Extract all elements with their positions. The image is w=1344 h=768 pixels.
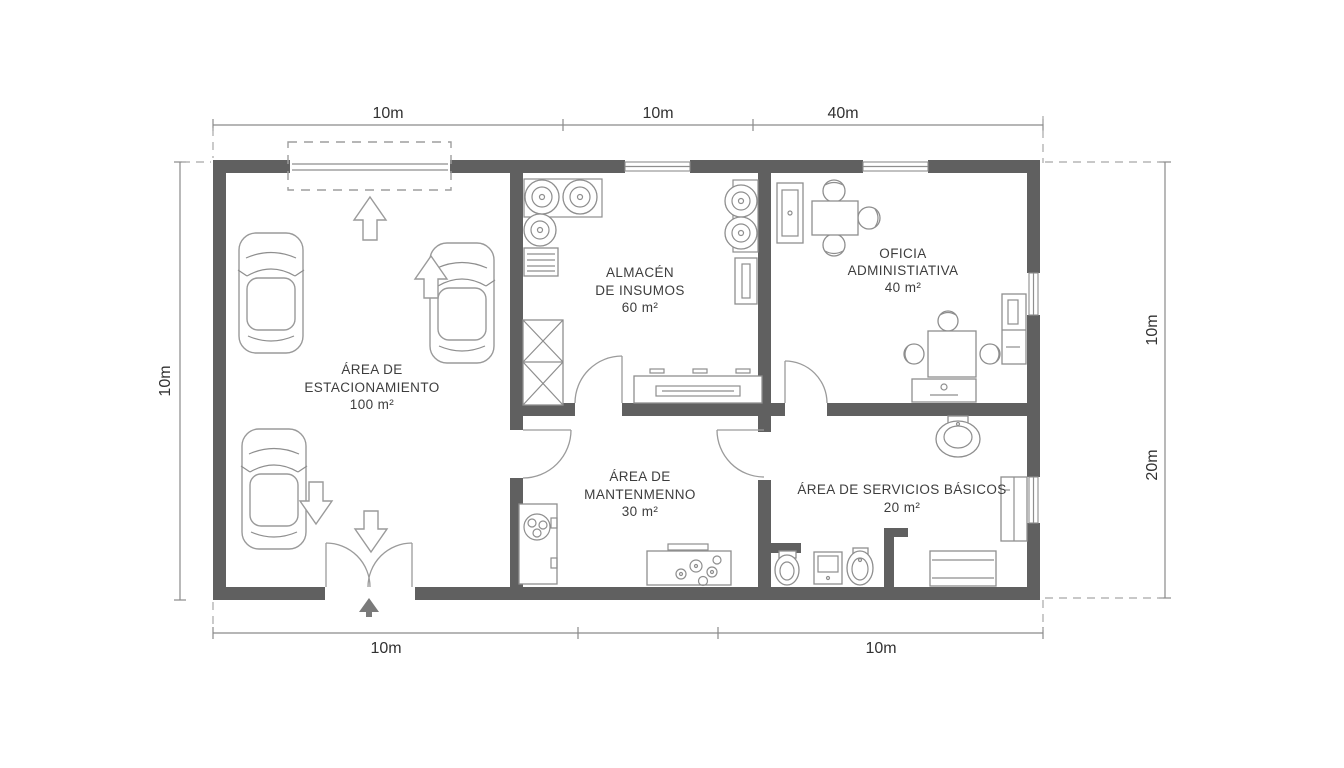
- floor-plan-svg: 10m 10m 40m 10m 10m 20m 10m 10m: [0, 0, 1344, 768]
- window-top-oficina: [863, 162, 928, 171]
- room-area-almacen: 60 m²: [622, 300, 659, 315]
- car-3: [241, 429, 307, 549]
- toilet: [775, 551, 799, 585]
- entry-arrow-icon: [359, 598, 379, 617]
- door-almacen: [575, 356, 622, 403]
- sink-oval: [936, 416, 980, 457]
- washbasin: [814, 552, 842, 584]
- arrow-down-icon: [355, 511, 387, 552]
- car-2: [429, 243, 495, 363]
- dim-left-1: 10m: [157, 365, 174, 396]
- dim-top-1: 10m: [372, 105, 403, 122]
- room-area-oficina: 40 m²: [885, 280, 922, 295]
- window-right-servicios: [1029, 477, 1038, 523]
- dim-top-2: 10m: [642, 105, 673, 122]
- window-right-oficina: [1029, 273, 1038, 315]
- room-label-almacen: ALMACÉN: [606, 265, 674, 280]
- room-label-estacionamiento: ESTACIONAMIENTO: [304, 380, 439, 395]
- dim-right-1: 10m: [1144, 314, 1161, 345]
- room-label-estacionamiento: ÁREA DE: [341, 362, 402, 377]
- room-area-mantenimiento: 30 m²: [622, 504, 659, 519]
- bidet: [847, 548, 873, 585]
- dim-bottom-2: 10m: [865, 640, 896, 657]
- window-top-almacen: [625, 162, 690, 171]
- room-label-oficina: ADMINISTIATIVA: [848, 263, 959, 278]
- door-oficina: [785, 361, 827, 403]
- floor-plan-canvas: 10m 10m 40m 10m 10m 20m 10m 10m: [0, 0, 1344, 768]
- garage-door: [288, 142, 451, 190]
- room-label-mantenimiento: MANTENMENNO: [584, 487, 696, 502]
- bench: [930, 551, 996, 586]
- dim-bottom-1: 10m: [370, 640, 401, 657]
- door-servicios: [717, 430, 764, 477]
- dim-top-3: 40m: [827, 105, 858, 122]
- room-area-servicios: 20 m²: [884, 500, 921, 515]
- car-1: [238, 233, 304, 353]
- room-label-mantenimiento: ÁREA DE: [609, 469, 670, 484]
- room-label-almacen: DE INSUMOS: [595, 283, 685, 298]
- door-mantenimiento: [523, 430, 571, 478]
- arrow-up-icon: [354, 197, 386, 240]
- room-label-servicios: ÁREA DE SERVICIOS BÁSICOS: [797, 482, 1006, 497]
- dim-right-2: 20m: [1144, 449, 1161, 480]
- room-label-oficina: OFICIA: [879, 246, 926, 261]
- room-area-estacionamiento: 100 m²: [350, 397, 395, 412]
